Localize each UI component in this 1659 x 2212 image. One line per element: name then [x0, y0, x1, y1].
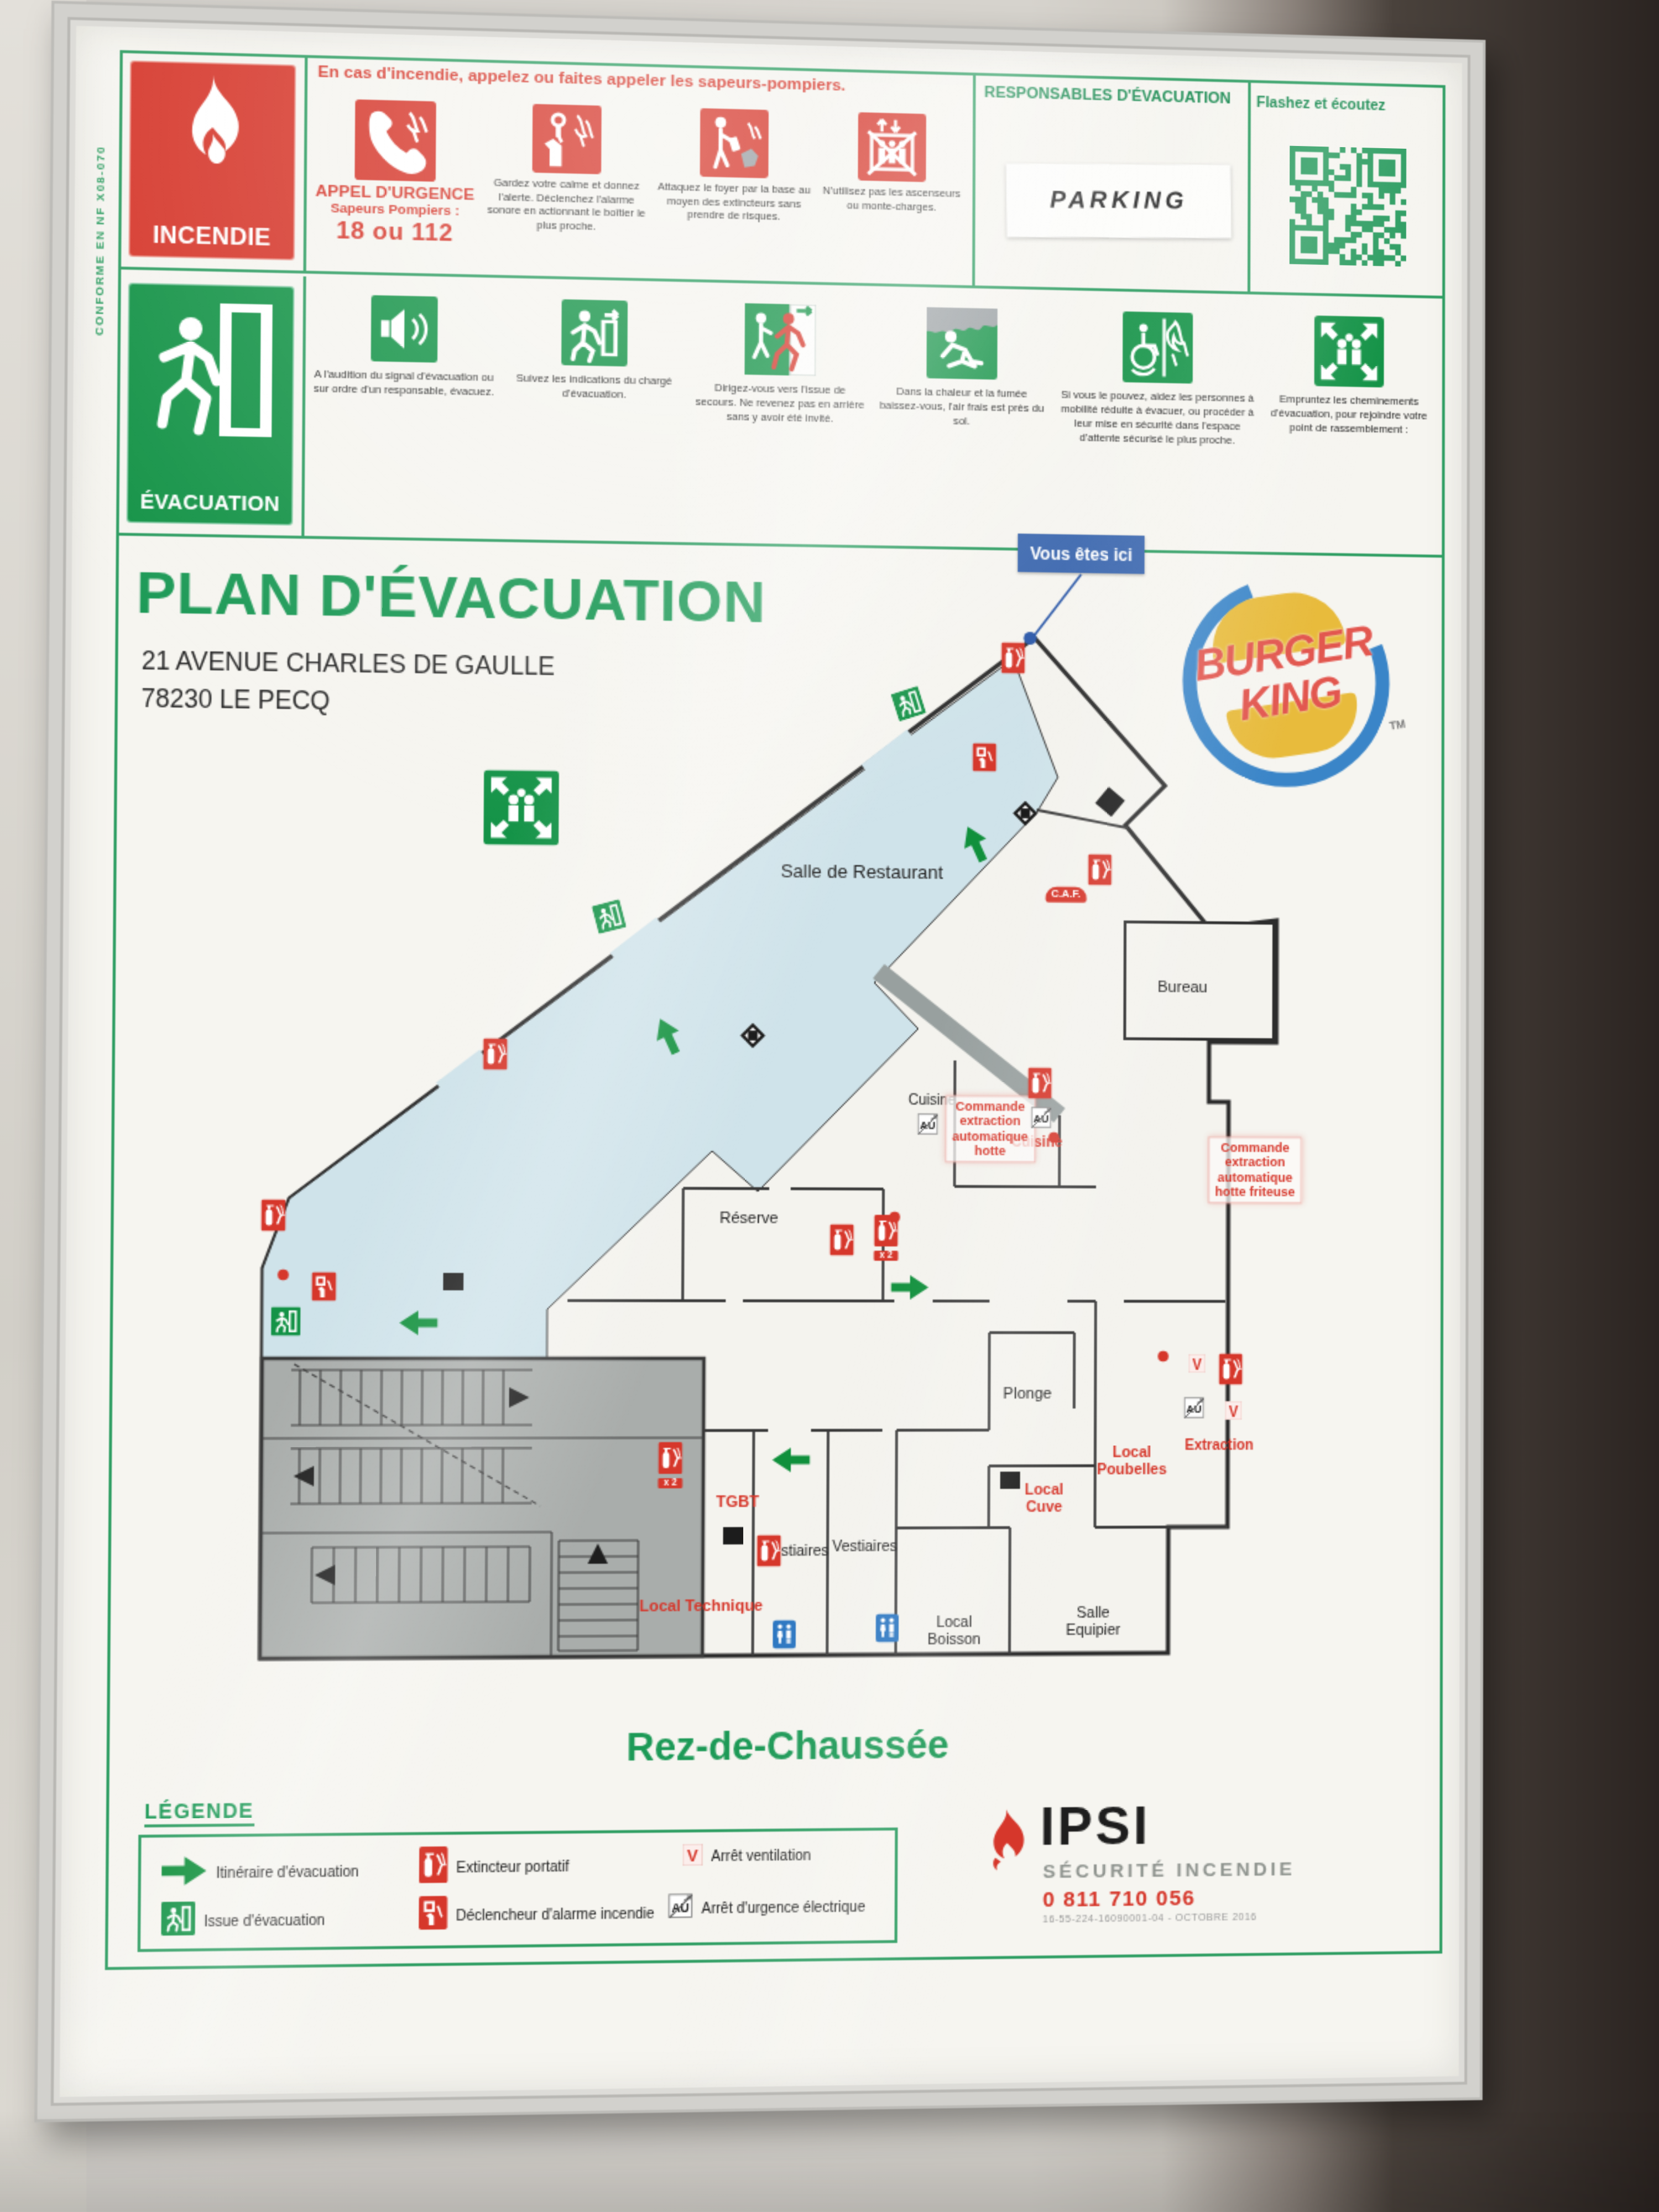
legend-title: LÉGENDE [144, 1799, 254, 1828]
door-closer-icon [1000, 1470, 1020, 1496]
room-salle-equipier: Salle Equipier [1066, 1604, 1120, 1639]
evacuation-panel: ÉVACUATION [128, 284, 293, 524]
emergency-step: Gardez votre calme et donnez l'alerte. D… [484, 103, 649, 236]
wc-icon [773, 1620, 796, 1656]
bk-trademark: TM [1389, 718, 1406, 733]
legend-label: Extincteur portatif [456, 1859, 569, 1876]
emergency-call-block: APPEL D'URGENCE Sapeurs Pompiers : 18 ou… [311, 98, 479, 249]
step-text: Dans la chaleur et la fumée baissez-vous… [875, 384, 1048, 430]
evac-route-arrow-icon [399, 1302, 438, 1337]
exit-sign-icon [891, 686, 928, 728]
vent-stop-v-icon: V [1188, 1354, 1206, 1380]
multiplier-tag: x 2 [874, 1251, 898, 1261]
emergency-stop-au-icon: AU [917, 1113, 938, 1142]
evacuation-step: Dirigez-vous vers l'issue de secours. Ne… [693, 302, 867, 426]
qr-code [1290, 146, 1407, 267]
legend: Itinéraire d'évacuation Extincteur porta… [138, 1828, 898, 1952]
floor-plan: Salle de RestaurantBureauRéserveCuisineC… [201, 618, 1350, 1723]
evacuation-step: A l'audition du signal d'évacuation ou s… [312, 294, 495, 399]
room-salle-de-restaurant: Salle de Restaurant [780, 861, 943, 884]
ipsi-subtitle: SÉCURITÉ INCENDIE [1043, 1858, 1296, 1882]
extinguisher-icon [261, 1199, 286, 1239]
ipsi-flame-icon [977, 1806, 1031, 1873]
divider [1248, 80, 1251, 292]
alarm-point-icon [888, 1205, 901, 1231]
vent-stop-v-icon: V [1225, 1401, 1242, 1427]
evac-route-arrow-icon [955, 817, 1002, 867]
fire-alarm-icon [311, 1272, 336, 1308]
room-local-technique: Local Technique [639, 1597, 763, 1616]
evac-route-arrow-icon [891, 1274, 930, 1308]
parking-label: PARKING [1050, 186, 1188, 216]
legend-label: Arrêt ventilation [711, 1849, 811, 1866]
room-local-poubelles: Local Poubelles [1097, 1444, 1167, 1479]
extinguisher-icon [483, 1038, 508, 1077]
step-text: Si vous le pouvez, aidez les personnes à… [1059, 388, 1255, 448]
legend-label: Arrêt d'urgence électrique [701, 1900, 865, 1917]
you-are-here-pin-icon [1022, 628, 1038, 654]
step-text: N'utilisez pas les ascenseurs ou monte-c… [817, 184, 967, 215]
assembly-point-icon [1314, 316, 1384, 388]
legend-item: Issue d'évacuation [161, 1900, 325, 1943]
svg-text:V: V [1192, 1356, 1202, 1373]
map-extraction-label: Extraction [1185, 1438, 1253, 1455]
exit-door-icon [744, 303, 816, 376]
door-closer-icon [443, 1271, 463, 1297]
step-text: Attaquez le foyer par la base au moyen d… [654, 180, 813, 225]
follow-exit-icon [561, 299, 628, 367]
svg-text:V: V [687, 1847, 698, 1865]
evacuation-step: Si vous le pouvez, aidez les personnes à… [1059, 310, 1256, 448]
exit-sign-icon [592, 899, 629, 941]
step-text: Suivez les indications du chargé d'évacu… [507, 371, 682, 403]
assembly-point-icon [483, 770, 559, 853]
evac-route-arrow-icon [161, 1855, 207, 1895]
extinguisher-icon [1001, 642, 1025, 681]
legend-label: Itinéraire d'évacuation [216, 1865, 359, 1882]
extinguisher-icon [830, 1224, 854, 1262]
map-caf-label: C.A.F. [1046, 886, 1087, 902]
step-text: Empruntez les cheminements d'évacuation,… [1264, 392, 1434, 437]
fire-alarm-icon [419, 1896, 447, 1937]
svg-text:V: V [1229, 1403, 1239, 1420]
legend-item: Itinéraire d'évacuation [161, 1853, 359, 1895]
evacuation-label: ÉVACUATION [128, 491, 291, 517]
multiplier-tag: x 2 [658, 1478, 682, 1488]
extinguisher-icon [757, 1535, 781, 1574]
step-text: A l'audition du signal d'évacuation ou s… [312, 367, 495, 399]
room-bureau: Bureau [1157, 979, 1207, 997]
wheelchair-fire-icon [1123, 311, 1193, 384]
emergency-stop-au-icon: AU [1183, 1397, 1204, 1426]
evacuation-exit-icon [137, 290, 284, 475]
smoke-crouch-icon [926, 307, 997, 379]
map-cmd-friteuse-label: Commande extraction automatique hotte fr… [1208, 1136, 1302, 1204]
emergency-phone-icon [354, 100, 436, 182]
room-vestiaires-2: Vestiaires [832, 1538, 898, 1556]
evacuation-step: Suivez les indications du chargé d'évacu… [507, 298, 682, 403]
room-plonge: Plonge [1003, 1385, 1052, 1404]
legend-item: VArrêt ventilation [682, 1843, 811, 1873]
extinguisher-icon [419, 1846, 448, 1891]
ipsi-brand: IPSI [1040, 1796, 1151, 1858]
shutoff-valve-icon [740, 1022, 766, 1056]
vent-stop-v-icon: V [682, 1844, 702, 1873]
wall-shadow [0, 2111, 1659, 2212]
evac-route-arrow-icon [771, 1439, 810, 1474]
photo-scene: CONFORME EN NF X08-070 INCENDIE En cas d… [0, 0, 1659, 2212]
you-are-here-badge: Vous êtes ici [1018, 534, 1144, 574]
extinguisher-icon [1219, 1353, 1243, 1392]
ipsi-phone: 0 811 710 056 [1042, 1886, 1196, 1912]
extinguisher-icon [1088, 854, 1112, 893]
evacuation-step: Dans la chaleur et la fumée baissez-vous… [875, 306, 1048, 430]
step-text: Gardez votre calme et donnez l'alerte. D… [484, 176, 649, 236]
ipsi-reference: 16-55-224-16090001-04 - OCTOBRE 2016 [1042, 1913, 1257, 1926]
fire-icon [148, 68, 277, 195]
emergency-step: Attaquez le foyer par la base au moyen d… [654, 107, 814, 226]
step-text: Dirigez-vous vers l'issue de secours. Ne… [693, 380, 867, 426]
fire-alarm-icon [972, 743, 997, 779]
poster-frame: CONFORME EN NF X08-070 INCENDIE En cas d… [34, 1, 1485, 2122]
evacuation-step: Empruntez les cheminements d'évacuation,… [1264, 315, 1434, 437]
incendie-label: INCENDIE [130, 222, 293, 253]
extinguisher-icon: x 2 [658, 1442, 683, 1489]
alarm-point-icon [1047, 1125, 1060, 1151]
room-local-boisson: Local Boisson [927, 1614, 980, 1648]
legend-item: Extincteur portatif [419, 1845, 570, 1891]
floor-title: Rez-de-Chaussée [449, 1722, 1123, 1772]
room-local-cuve: Local Cuve [1025, 1481, 1063, 1516]
no-elevator-icon [858, 112, 926, 182]
wc-icon [876, 1614, 899, 1650]
extinguish-fire-icon [700, 108, 769, 179]
emergency-step: N'utilisez pas les ascenseurs ou monte-c… [817, 111, 967, 215]
door-closer-icon [723, 1526, 743, 1552]
room-reserve: Réserve [719, 1209, 778, 1228]
evac-route-arrow-icon [648, 1009, 695, 1059]
alarm-point-icon [1157, 1344, 1170, 1370]
shutoff-valve-icon [1013, 800, 1038, 833]
emergency-stop-au-icon: AU [668, 1893, 693, 1926]
ipsi-footer: IPSI SÉCURITÉ INCENDIE 0 811 710 056 16-… [952, 1794, 1440, 1943]
conformity-note: CONFORME EN NF X08-070 [93, 75, 108, 336]
call-numbers: 18 ou 112 [311, 216, 479, 249]
extinguisher-icon [1028, 1067, 1052, 1106]
legend-item: AUArrêt d'urgence électrique [668, 1891, 865, 1926]
alarm-speaker-icon [371, 295, 438, 363]
room-tgbt: TGBT [716, 1494, 759, 1512]
fire-alarm-button-icon [532, 104, 601, 174]
legend-item: Déclencheur d'alarme incendie [419, 1893, 654, 1937]
evacuation-poster: CONFORME EN NF X08-070 INCENDIE En cas d… [60, 26, 1462, 2097]
legend-label: Déclencheur d'alarme incendie [456, 1906, 655, 1924]
exit-sign-icon [161, 1902, 195, 1943]
legend-label: Issue d'évacuation [204, 1913, 325, 1931]
responsables-value-sticker: PARKING [1006, 163, 1232, 238]
incendie-panel: INCENDIE [130, 62, 295, 259]
map-cmd-hotte-label: Commande extraction automatique hotte [945, 1095, 1035, 1163]
exit-sign-icon [271, 1307, 300, 1343]
alarm-point-icon [276, 1262, 290, 1288]
